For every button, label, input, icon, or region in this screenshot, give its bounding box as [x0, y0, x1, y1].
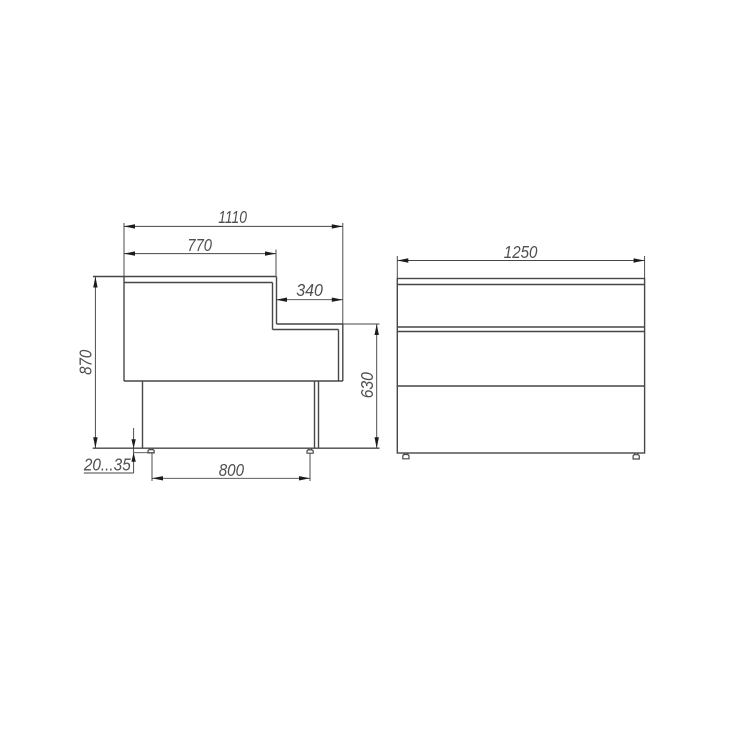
svg-text:1110: 1110: [218, 207, 247, 227]
svg-text:1250: 1250: [504, 242, 538, 262]
svg-text:20...35: 20...35: [83, 454, 131, 474]
svg-text:630: 630: [357, 372, 377, 399]
svg-text:770: 770: [187, 235, 212, 255]
svg-text:870: 870: [76, 349, 96, 374]
svg-text:800: 800: [219, 460, 245, 480]
svg-text:340: 340: [296, 280, 323, 300]
